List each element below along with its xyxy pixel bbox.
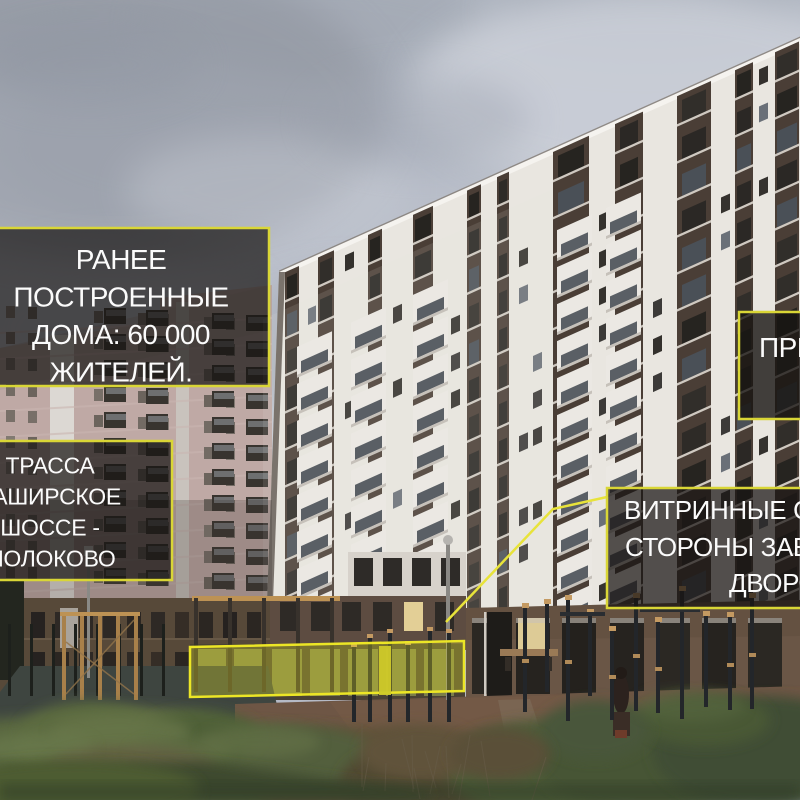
svg-text:РАНЕЕ: РАНЕЕ [76,244,167,275]
svg-text:ВИТРИННЫЕ ОКНА: ВИТРИННЫЕ ОКНА [624,495,800,525]
svg-text:ТРАССА: ТРАССА [6,453,96,479]
svg-text:ДВОРОВ: ДВОРОВ [729,568,800,598]
svg-text:СТОРОНЫ ЗАЕЗДА: СТОРОНЫ ЗАЕЗДА [625,532,800,562]
svg-text:МОЛОКОВО: МОЛОКОВО [0,546,115,572]
svg-text:ПРИДОМОВАЯ: ПРИДОМОВАЯ [759,332,800,363]
svg-text:ШОССЕ -: ШОССЕ - [0,515,99,541]
svg-text:КАШИРСКОЕ: КАШИРСКОЕ [0,484,121,510]
svg-text:ПОСТРОЕННЫЕ: ПОСТРОЕННЫЕ [13,282,228,313]
svg-text:ДОМА: 60 000: ДОМА: 60 000 [32,319,210,350]
svg-text:ЖИТЕЛЕЙ.: ЖИТЕЛЕЙ. [50,357,193,388]
